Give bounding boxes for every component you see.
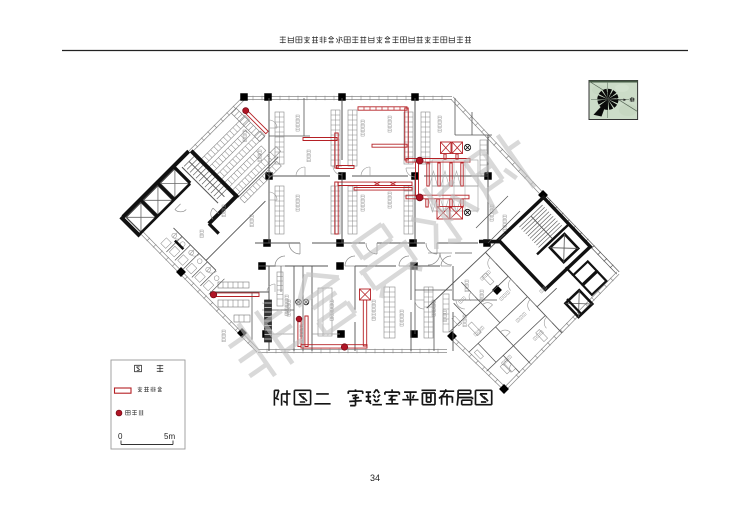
svg-text:34: 34 (370, 473, 380, 483)
svg-text:5m: 5m (164, 432, 175, 441)
svg-text:0: 0 (118, 432, 123, 441)
